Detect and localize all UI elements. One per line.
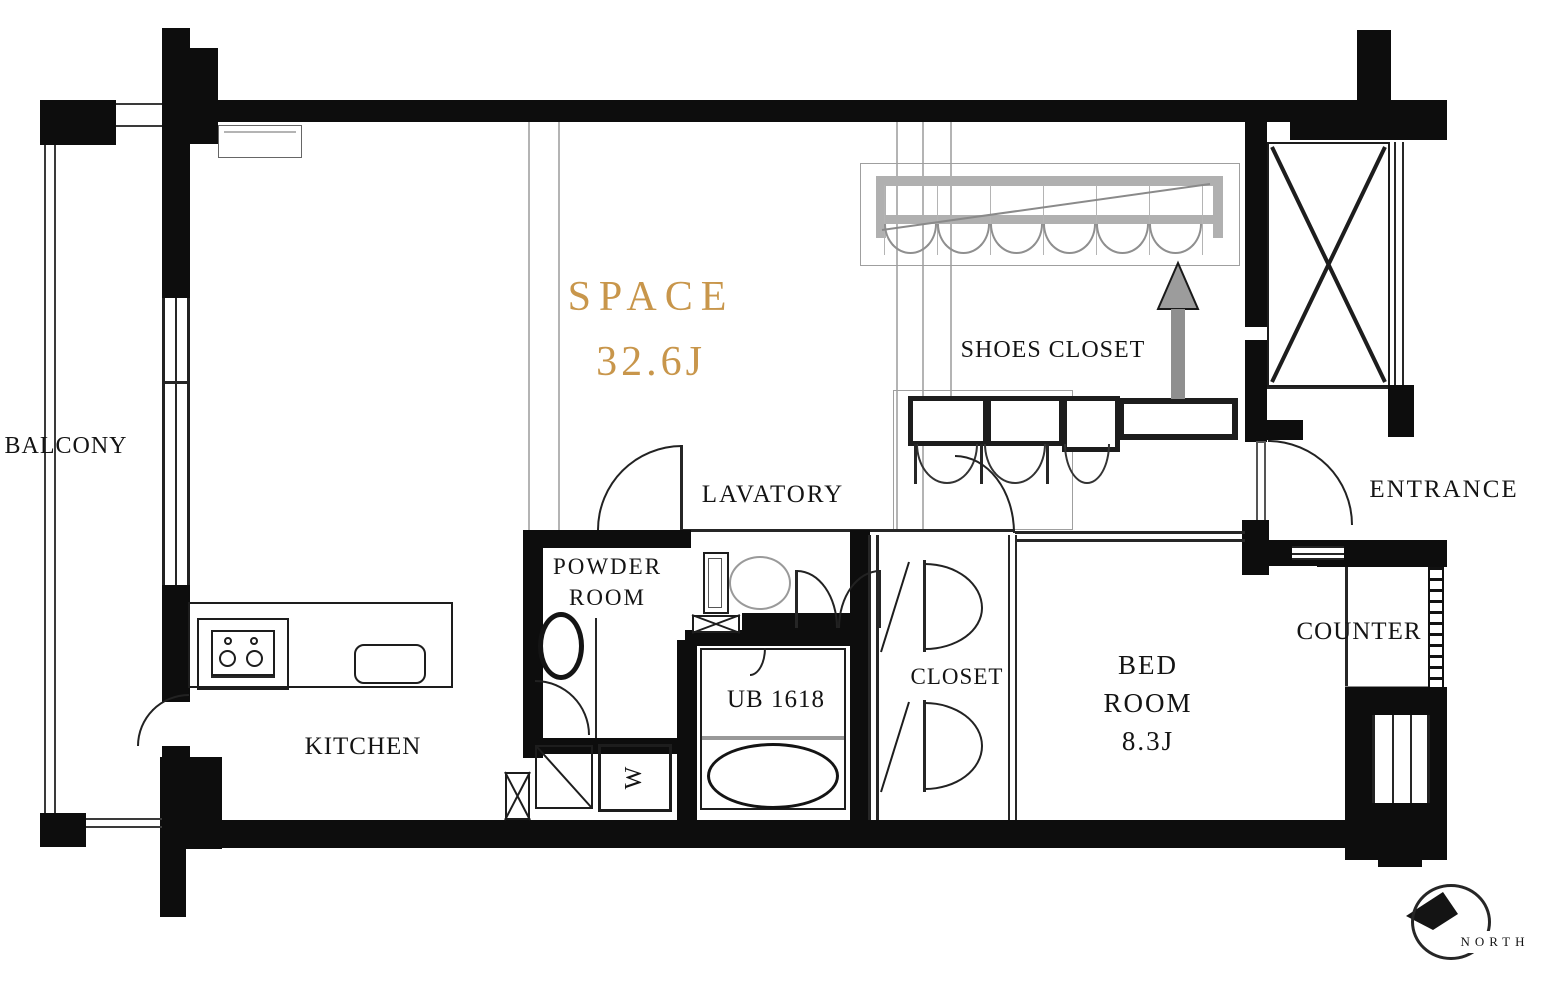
compass-tick <box>1378 858 1422 867</box>
bedroom-area: 8.3J <box>1122 723 1174 761</box>
room-label-balcony: BALCONY <box>0 432 132 462</box>
counter-text: COUNTER <box>1296 618 1421 647</box>
closet-bifold-diagonal <box>881 562 909 652</box>
kitchen-text: KITCHEN <box>305 733 422 762</box>
space-area-text: 32.6J <box>596 338 706 386</box>
room-label-powder-room: POWDER ROOM <box>540 548 675 616</box>
room-label-space-area: 32.6J <box>556 334 746 390</box>
room-label-kitchen: KITCHEN <box>293 732 433 762</box>
space-text: SPACE <box>568 273 735 321</box>
entry-direction-arrow-head <box>1158 263 1198 309</box>
room-label-shoes-closet: SHOES CLOSET <box>948 336 1158 366</box>
room-label-bedroom: BED ROOM 8.3J <box>1078 645 1218 763</box>
floor-plan: W NORTH <box>0 0 1547 992</box>
powder-line1: POWDER <box>553 551 662 582</box>
powder-line2: ROOM <box>569 582 646 613</box>
room-label-unit-bath: UB 1618 <box>712 684 840 716</box>
hanger-rack-diagonal <box>882 184 1210 230</box>
room-label-space: SPACE <box>556 270 746 324</box>
balcony-text: BALCONY <box>4 433 127 461</box>
storage-diagonal <box>537 747 591 807</box>
room-label-lavatory: LAVATORY <box>688 480 858 510</box>
bedroom-line1: BED <box>1118 647 1178 685</box>
entrance-text: ENTRANCE <box>1369 476 1518 505</box>
unit-bath-text: UB 1618 <box>727 686 825 715</box>
room-label-entrance: ENTRANCE <box>1360 474 1528 506</box>
closet-text: CLOSET <box>911 664 1004 690</box>
lavatory-text: LAVATORY <box>702 481 844 510</box>
shoes-closet-text: SHOES CLOSET <box>961 337 1146 365</box>
closet-bifold-diagonal <box>881 702 909 792</box>
room-label-counter: COUNTER <box>1283 615 1435 649</box>
entry-direction-arrow-shaft <box>1171 309 1185 399</box>
compass-north-label: NORTH <box>1449 931 1541 953</box>
bedroom-line2: ROOM <box>1103 685 1192 723</box>
north-text: NORTH <box>1461 935 1530 950</box>
room-label-closet: CLOSET <box>898 662 1016 692</box>
